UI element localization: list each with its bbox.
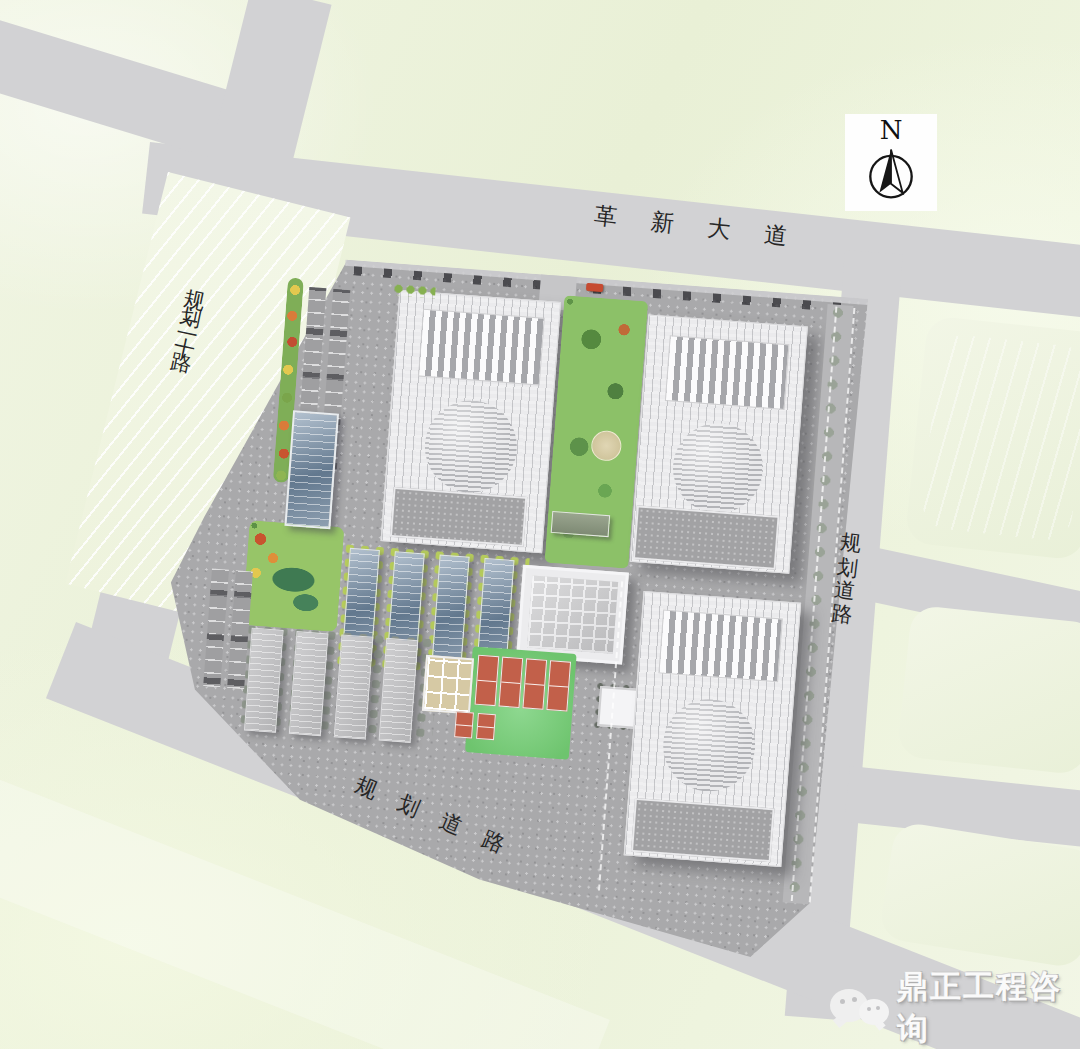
parcel-east-middle xyxy=(897,605,1080,776)
north-arrow-icon xyxy=(864,144,918,202)
grid-roof-building xyxy=(516,565,629,665)
warehouse-b xyxy=(630,315,808,574)
warehouse-b-dome-skylight xyxy=(670,420,766,516)
red-truck xyxy=(586,283,604,292)
project-site xyxy=(135,248,888,1028)
warehouse-a xyxy=(381,290,561,553)
basketball-court-2 xyxy=(498,657,523,708)
warehouse-c xyxy=(624,591,801,867)
park-circular-plaza xyxy=(590,430,622,462)
site-plan-canvas: 革新大道 规划二十路 规划道路 规划道路 N 鼎正工程咨询 xyxy=(0,0,1080,1049)
warehouse-b-skylight-band xyxy=(665,335,790,410)
grid-roof-skylights xyxy=(527,576,618,654)
blue-glass-building xyxy=(284,410,339,529)
pond-garden-west xyxy=(242,520,345,632)
warehouse-a-dome-skylight xyxy=(422,397,521,496)
north-indicator: N xyxy=(845,114,937,211)
watermark-brand: 鼎正工程咨询 xyxy=(897,966,1080,1049)
wechat-icon xyxy=(830,980,891,1036)
warehouse-a-loading-apron xyxy=(390,487,527,547)
parcel-hatch-texture xyxy=(920,333,1080,543)
tan-grid-court xyxy=(422,655,474,714)
basketball-court-4 xyxy=(546,660,571,711)
north-letter: N xyxy=(880,117,903,144)
watermark: 鼎正工程咨询 xyxy=(830,966,1080,1049)
warehouse-c-loading-apron xyxy=(631,798,775,862)
small-court-1 xyxy=(454,711,474,738)
warehouse-c-dome-skylight xyxy=(660,696,759,795)
park-pavilion-building xyxy=(551,511,610,537)
small-court-2 xyxy=(476,713,496,740)
warehouse-a-skylight-band xyxy=(418,309,545,386)
basketball-court-3 xyxy=(522,658,547,709)
basketball-court-1 xyxy=(475,655,500,706)
warehouse-c-skylight-band xyxy=(658,609,782,682)
warehouse-b-loading-apron xyxy=(633,505,780,570)
